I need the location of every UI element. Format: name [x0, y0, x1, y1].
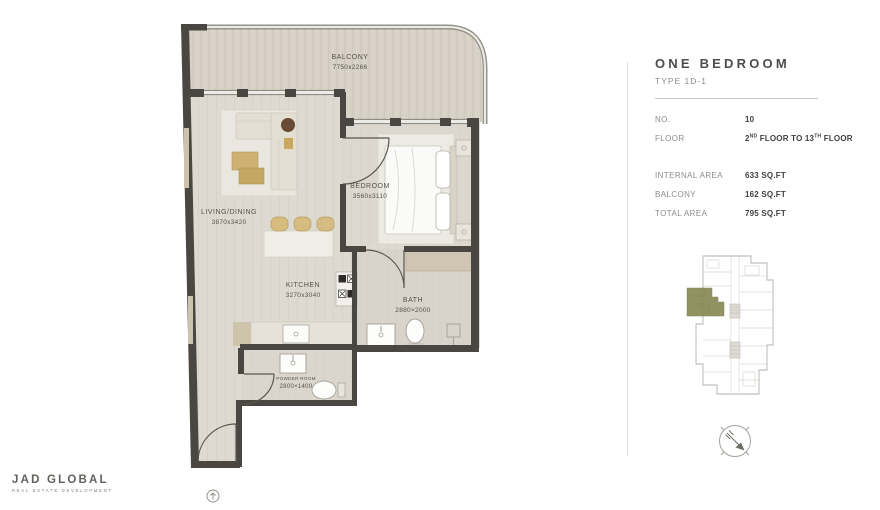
floor-plan-page: BALCONY 7750x2266 LIVING/DINING 3870x342…	[0, 0, 880, 510]
row-balcony-area: BALCONY 162 SQ.FT	[655, 190, 870, 202]
unit-type-code: TYPE 1D-1	[655, 76, 707, 86]
floor-range-value: 2ND FLOOR TO 13TH FLOOR	[745, 134, 853, 143]
living-furniture	[221, 110, 297, 196]
entry-arrow-icon	[207, 490, 219, 502]
compass-icon	[720, 426, 751, 457]
row-floor-range: FLOOR 2ND FLOOR TO 13TH FLOOR	[655, 134, 870, 146]
row-total-area: TOTAL AREA 795 SQ.FT	[655, 209, 870, 221]
panel-divider	[627, 62, 628, 456]
logo-wordmark: JAD GLOBAL	[12, 474, 113, 486]
logo-tagline: REAL ESTATE DEVELOPMENT	[12, 488, 113, 493]
key-plan	[687, 256, 773, 394]
company-logo: JAD GLOBAL REAL ESTATE DEVELOPMENT	[12, 474, 113, 493]
floor-plan-graphic	[0, 0, 880, 510]
unit-type-title: ONE BEDROOM	[655, 56, 790, 71]
row-unit-number: NO. 10	[655, 115, 870, 127]
panel-rule	[655, 98, 818, 99]
row-internal-area: INTERNAL AREA 633 SQ.FT	[655, 171, 870, 183]
kitchen-island	[264, 217, 334, 257]
